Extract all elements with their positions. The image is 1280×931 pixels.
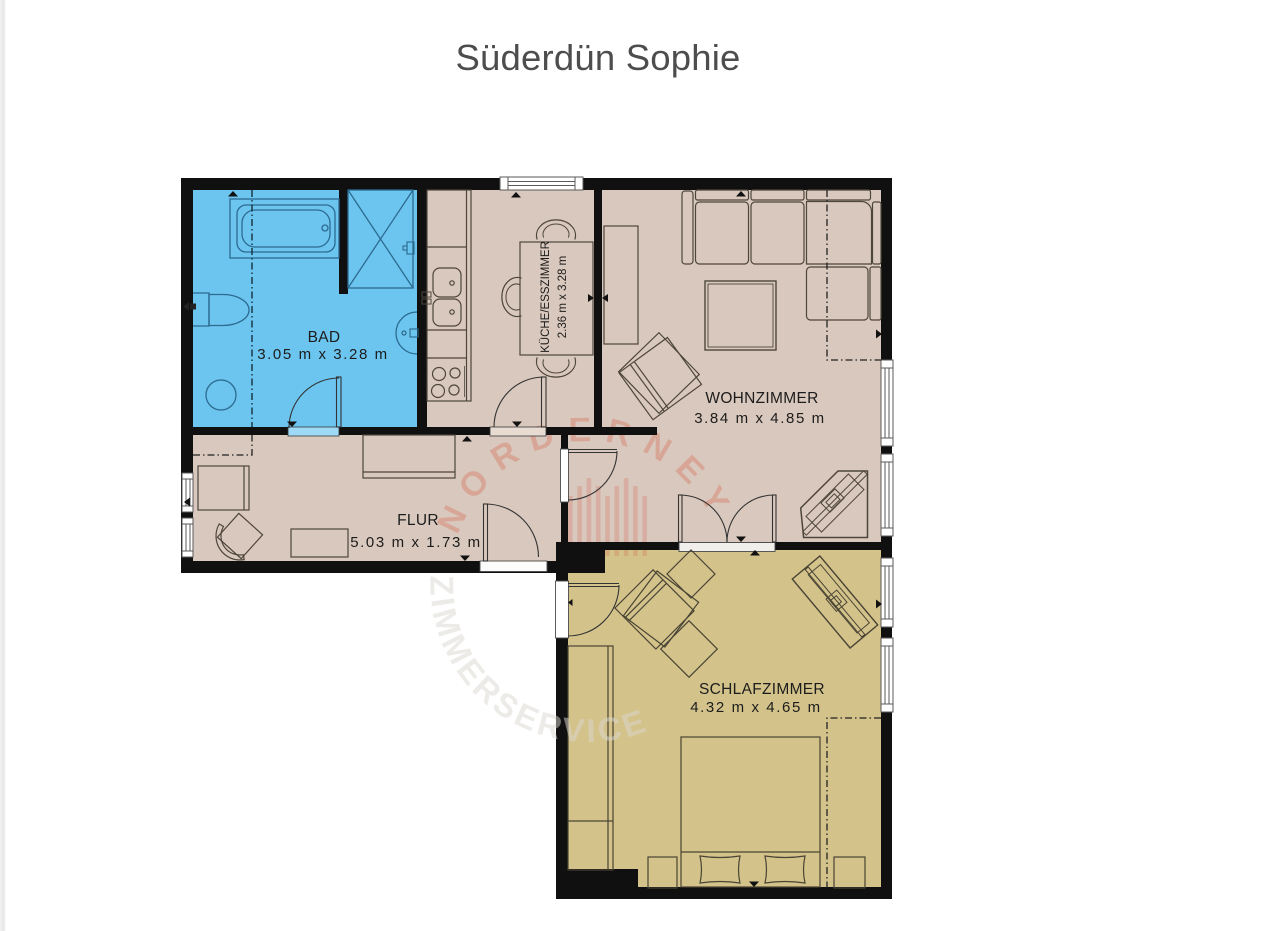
svg-text:3.84 m x 4.85 m: 3.84 m x 4.85 m: [694, 410, 826, 427]
svg-text:FLUR: FLUR: [397, 512, 439, 529]
svg-text:3.05 m x 3.28 m: 3.05 m x 3.28 m: [257, 346, 389, 363]
svg-text:BAD: BAD: [308, 329, 341, 346]
svg-text:WOHNZIMMER: WOHNZIMMER: [705, 390, 818, 407]
svg-text:4.32 m x 4.65 m: 4.32 m x 4.65 m: [690, 699, 822, 716]
svg-text:SCHLAFZIMMER: SCHLAFZIMMER: [699, 681, 825, 698]
svg-text:KÜCHE/ESSZIMMER: KÜCHE/ESSZIMMER: [540, 241, 552, 353]
svg-text:5.03 m x 1.73 m: 5.03 m x 1.73 m: [350, 534, 482, 551]
svg-text:2.36 m x 3.28 m: 2.36 m x 3.28 m: [557, 256, 569, 338]
